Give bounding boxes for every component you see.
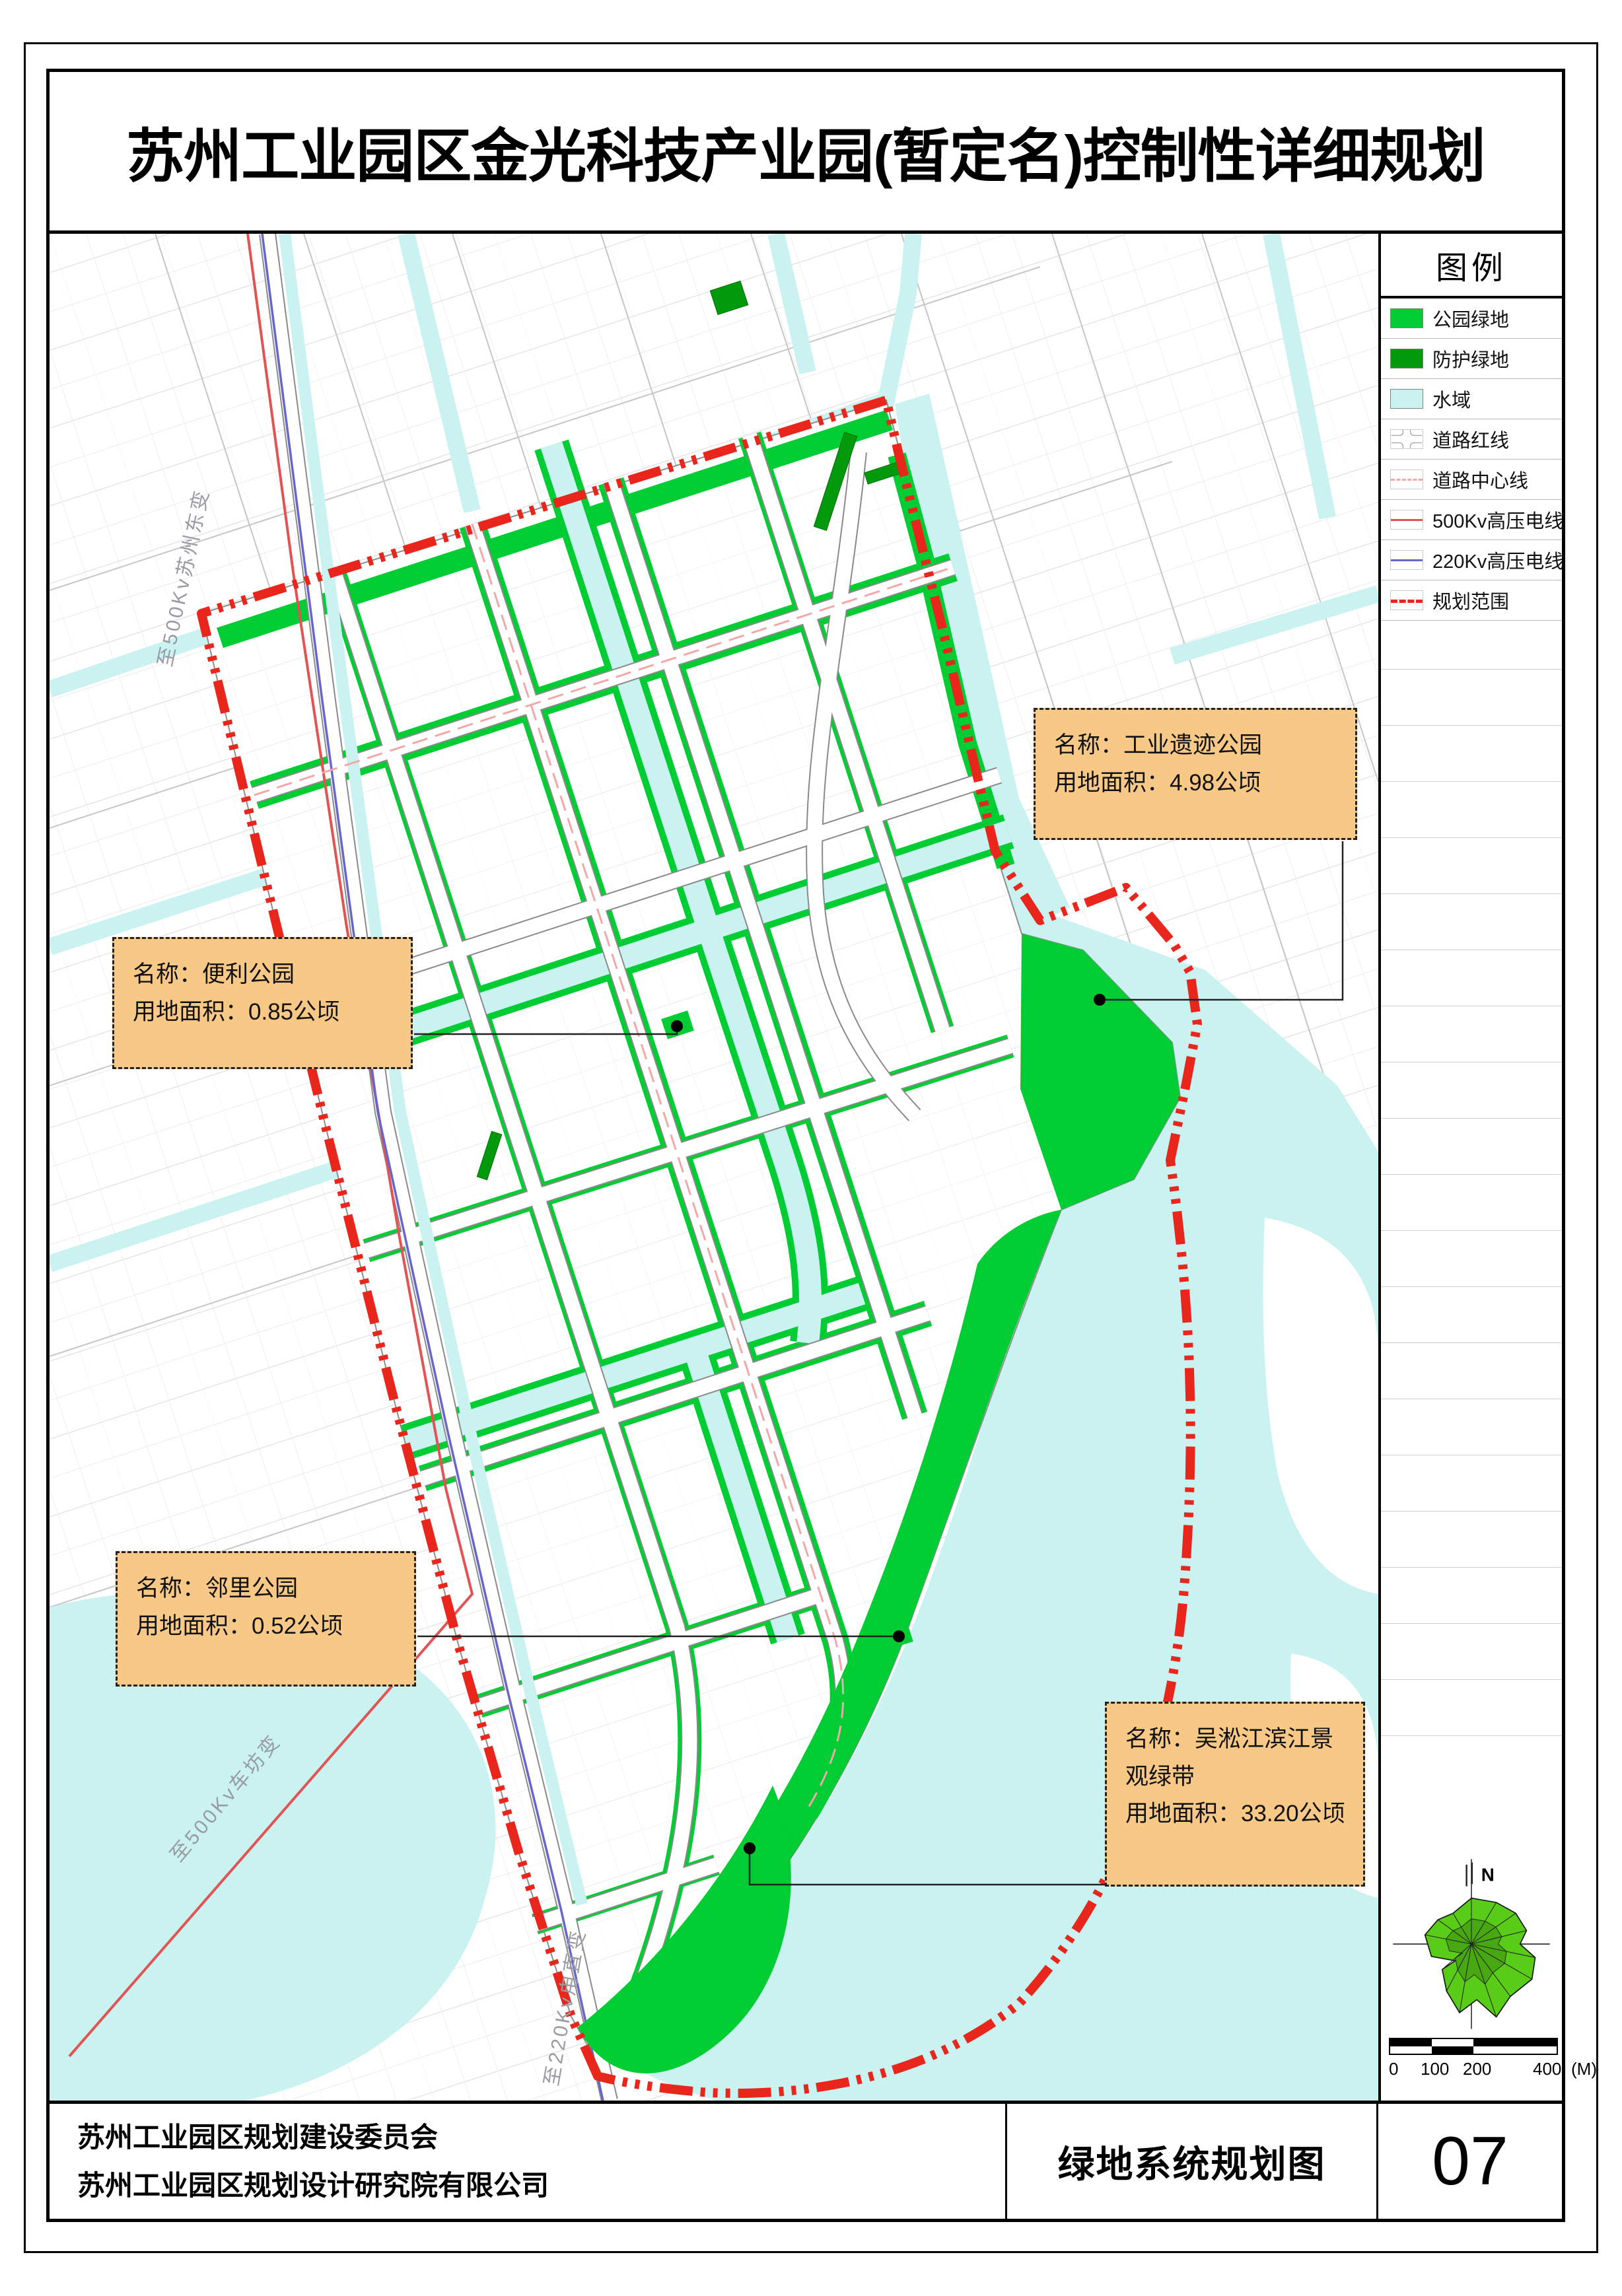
- line-500kv-swatch: [1390, 510, 1423, 530]
- legend-item-protective-green: 防护绿地: [1381, 339, 1562, 379]
- north-label: N: [1481, 1864, 1495, 1885]
- sheet-number-cell: 07: [1378, 2104, 1562, 2219]
- legend-item-road-centerline: 道路中心线: [1381, 460, 1562, 500]
- plan-sheet-page: 苏州工业园区金光科技产业园(暂定名)控制性详细规划: [0, 0, 1622, 2296]
- convenience-park-dot: [671, 1020, 683, 1032]
- scale-bar-ticks: 0 100 200 400 (M): [1389, 2059, 1561, 2081]
- callout-name: 名称：工业遗迹公园: [1054, 727, 1339, 765]
- road-centerline-swatch: [1390, 470, 1423, 489]
- legend-item-500kv: 500Kv高压电线: [1381, 500, 1562, 540]
- callout-area: 用地面积：33.20公顷: [1125, 1795, 1347, 1833]
- map-canvas[interactable]: 至500Kv苏州东变 至500Kv车坊变 至220Kv甪直变 名称：工业遗迹公园…: [50, 234, 1378, 2101]
- water-swatch: [1390, 389, 1423, 409]
- callout-name: 名称：邻里公园: [136, 1570, 398, 1608]
- map-row: 至500Kv苏州东变 至500Kv车坊变 至220Kv甪直变 名称：工业遗迹公园…: [50, 234, 1562, 2101]
- organizations-cell: 苏州工业园区规划建设委员会 苏州工业园区规划设计研究院有限公司: [50, 2104, 1007, 2219]
- callout-neighborhood-park: 名称：邻里公园 用地面积：0.52公顷: [116, 1551, 416, 1687]
- legend-item-park-green: 公园绿地: [1381, 298, 1562, 339]
- legend-title: 图例: [1381, 234, 1562, 298]
- park-green-swatch: [1390, 308, 1423, 328]
- planning-scope-swatch: [1390, 590, 1423, 610]
- callout-riverfront-belt: 名称：吴淞江滨江景观绿带 用地面积：33.20公顷: [1105, 1702, 1365, 1887]
- callout-area: 用地面积：4.98公顷: [1054, 765, 1339, 802]
- callout-industrial-relic-park: 名称：工业遗迹公园 用地面积：4.98公顷: [1034, 708, 1357, 840]
- org-institute: 苏州工业园区规划设计研究院有限公司: [77, 2161, 1005, 2210]
- north-compass-rose: N: [1389, 1855, 1554, 2033]
- legend-item-220kv: 220Kv高压电线: [1381, 540, 1562, 580]
- legend-empty-rows: [1381, 613, 1562, 1747]
- callout-convenience-park: 名称：便利公园 用地面积：0.85公顷: [112, 937, 413, 1069]
- neighborhood-park-dot: [893, 1630, 905, 1642]
- legend-sidebar: 图例 公园绿地 防护绿地 水域 道路红线: [1378, 234, 1562, 2101]
- legend-item-water: 水域: [1381, 379, 1562, 419]
- org-committee: 苏州工业园区规划建设委员会: [77, 2113, 1005, 2162]
- industrial-park-dot: [1094, 994, 1106, 1006]
- drawing-title-cell: 绿地系统规划图: [1007, 2104, 1378, 2219]
- title-band: 苏州工业园区金光科技产业园(暂定名)控制性详细规划: [50, 72, 1562, 234]
- callout-name: 名称：吴淞江滨江景观绿带: [1125, 1721, 1347, 1795]
- callout-name: 名称：便利公园: [133, 956, 395, 994]
- callout-area: 用地面积：0.52公顷: [136, 1608, 398, 1646]
- protective-green-swatch: [1390, 349, 1423, 368]
- callout-area: 用地面积：0.85公顷: [133, 994, 395, 1031]
- page-title: 苏州工业园区金光科技产业园(暂定名)控制性详细规划: [126, 110, 1485, 193]
- road-redline-icon: [1390, 429, 1423, 449]
- legend-item-road-redline: 道路红线: [1381, 419, 1562, 460]
- riverfront-belt-dot: [744, 1842, 756, 1854]
- scale-unit: (M): [1571, 2059, 1597, 2079]
- title-block: 苏州工业园区规划建设委员会 苏州工业园区规划设计研究院有限公司 绿地系统规划图 …: [50, 2101, 1562, 2219]
- scale-bar: 0 100 200 400 (M): [1389, 2038, 1561, 2081]
- line-220kv-swatch: [1390, 550, 1423, 570]
- drawing-frame: 苏州工业园区金光科技产业园(暂定名)控制性详细规划: [46, 69, 1565, 2222]
